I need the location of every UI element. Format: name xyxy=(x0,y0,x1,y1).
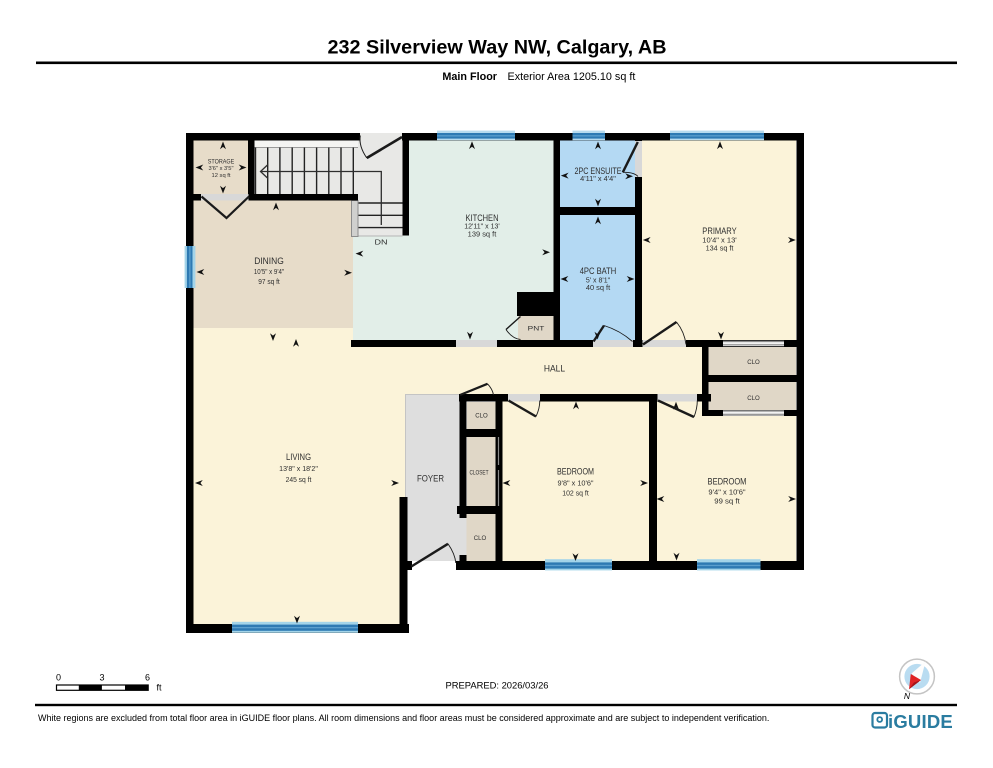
svg-text:4PC BATH: 4PC BATH xyxy=(580,266,617,276)
svg-text:STORAGE: STORAGE xyxy=(208,159,235,166)
svg-text:6: 6 xyxy=(145,673,150,683)
svg-text:10'5" x 9'4": 10'5" x 9'4" xyxy=(254,267,284,276)
svg-text:CLO: CLO xyxy=(747,359,760,366)
svg-text:99 sq ft: 99 sq ft xyxy=(714,497,739,506)
svg-text:PRIMARY: PRIMARY xyxy=(702,226,736,236)
svg-text:CLO: CLO xyxy=(474,535,487,542)
svg-text:9'8" x 10'6": 9'8" x 10'6" xyxy=(558,479,594,488)
svg-text:HALL: HALL xyxy=(544,364,565,374)
svg-text:White regions are excluded fro: White regions are excluded from total fl… xyxy=(38,713,769,723)
svg-text:3'6" x 3'5": 3'6" x 3'5" xyxy=(209,166,234,172)
svg-text:139 sq ft: 139 sq ft xyxy=(468,230,497,239)
svg-text:CLO: CLO xyxy=(747,395,760,402)
svg-text:3: 3 xyxy=(99,673,104,683)
svg-text:iGUIDE: iGUIDE xyxy=(888,711,953,732)
svg-text:DN: DN xyxy=(375,238,388,247)
svg-text:40 sq ft: 40 sq ft xyxy=(586,283,610,292)
svg-text:Main Floor: Main Floor xyxy=(442,71,497,83)
svg-text:245 sq ft: 245 sq ft xyxy=(286,475,312,484)
svg-text:CLOSET: CLOSET xyxy=(469,470,488,477)
svg-text:LIVING: LIVING xyxy=(286,452,311,462)
svg-text:N: N xyxy=(904,691,911,701)
svg-text:134 sq ft: 134 sq ft xyxy=(706,244,734,253)
svg-text:BEDROOM: BEDROOM xyxy=(708,477,747,487)
svg-text:PNT: PNT xyxy=(528,325,545,332)
svg-text:4'11" x 4'4": 4'11" x 4'4" xyxy=(580,174,616,183)
svg-text:12 sq ft: 12 sq ft xyxy=(212,173,231,179)
svg-text:DINING: DINING xyxy=(254,256,284,266)
svg-text:ft: ft xyxy=(157,683,163,693)
svg-text:FOYER: FOYER xyxy=(417,473,444,483)
svg-text:0: 0 xyxy=(56,673,61,683)
svg-text:BEDROOM: BEDROOM xyxy=(557,467,594,477)
svg-text:97 sq ft: 97 sq ft xyxy=(258,277,280,286)
svg-text:13'8" x 18'2": 13'8" x 18'2" xyxy=(279,464,318,473)
svg-text:PREPARED: 2026/03/26: PREPARED: 2026/03/26 xyxy=(445,680,548,691)
svg-text:Exterior Area 1205.10 sq ft: Exterior Area 1205.10 sq ft xyxy=(508,71,636,83)
svg-text:9'4" x 10'6": 9'4" x 10'6" xyxy=(708,488,746,497)
svg-text:102 sq ft: 102 sq ft xyxy=(562,489,589,498)
svg-text:232 Silverview Way NW, Calgary: 232 Silverview Way NW, Calgary, AB xyxy=(328,37,667,59)
svg-text:CLO: CLO xyxy=(475,413,488,420)
